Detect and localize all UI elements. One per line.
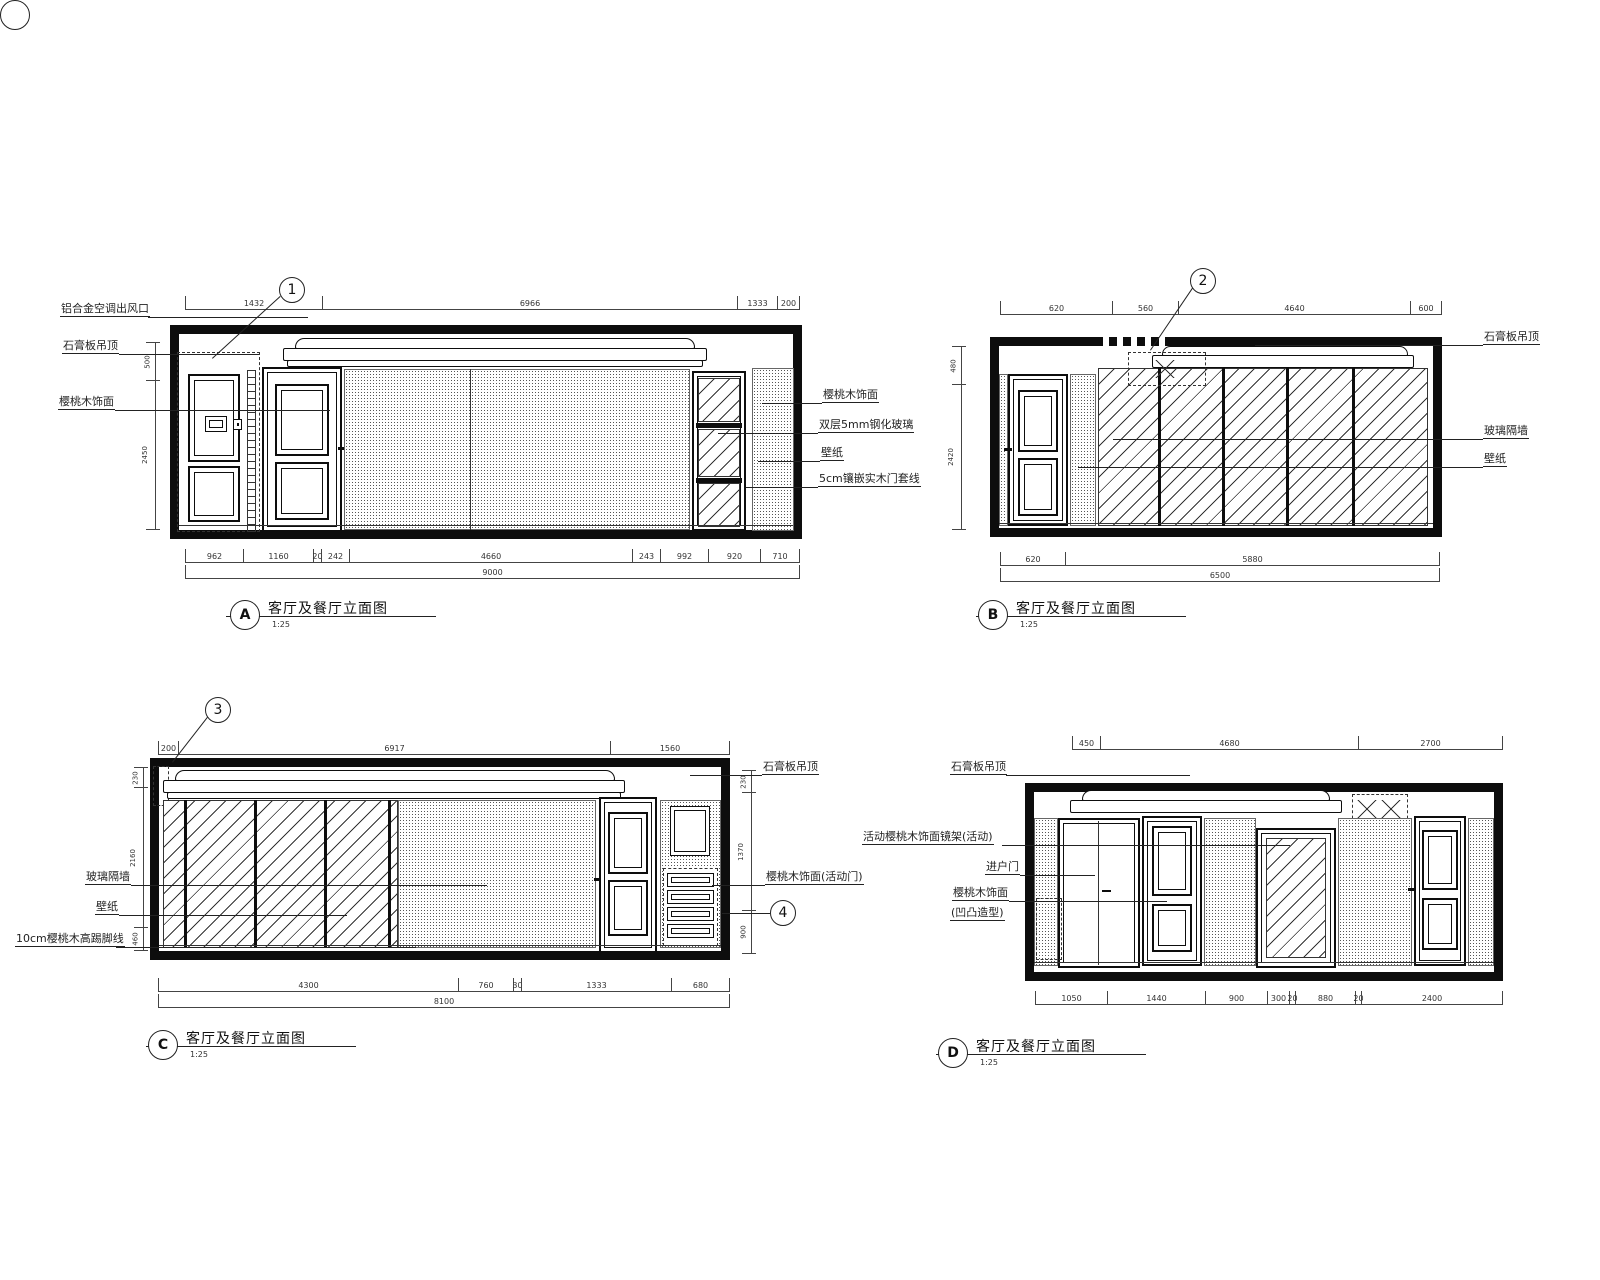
callout-bubble-4: 4 bbox=[770, 900, 796, 926]
panel-joint bbox=[470, 369, 471, 530]
material-label: 石膏板吊顶 bbox=[62, 339, 119, 354]
curtain-valance-band bbox=[1070, 800, 1342, 813]
floor-line bbox=[999, 523, 1433, 524]
door-panel bbox=[608, 812, 648, 874]
view-title: 客厅及餐厅立面图 bbox=[268, 598, 388, 618]
material-label: 铝合金空调出风口 bbox=[60, 302, 150, 317]
wallpaper-area bbox=[1468, 818, 1494, 966]
material-label: 5cm镶嵌实木门套线 bbox=[818, 472, 921, 487]
floor-line bbox=[179, 525, 793, 526]
wood-panel bbox=[188, 466, 240, 522]
curtain-valance-lip bbox=[287, 360, 703, 367]
leader-line bbox=[1002, 845, 1290, 846]
leader-line bbox=[119, 354, 259, 355]
view-title: 客厅及餐厅立面图 bbox=[1016, 598, 1136, 618]
callout-leader bbox=[172, 717, 208, 763]
material-label: 樱桃木饰面 bbox=[58, 395, 115, 410]
callout-bubble-1: 1 bbox=[279, 277, 305, 303]
glass-mullion bbox=[1158, 368, 1161, 526]
door-panel bbox=[1018, 390, 1058, 452]
material-label: 10cm樱桃木高踢脚线 bbox=[15, 932, 125, 947]
leader-line bbox=[115, 410, 330, 411]
glass-mullion bbox=[184, 800, 187, 948]
floor-line bbox=[159, 945, 721, 946]
material-label: 活动樱桃木饰面镜架(活动) bbox=[862, 830, 994, 845]
material-label: 壁纸 bbox=[820, 446, 844, 461]
glass-mullion bbox=[388, 800, 391, 948]
cabinet-shelf bbox=[696, 478, 742, 483]
cabinet-shelf bbox=[696, 423, 742, 428]
drawer bbox=[667, 924, 714, 938]
entry-door bbox=[1058, 818, 1140, 968]
material-label: 石膏板吊顶 bbox=[1483, 330, 1540, 345]
glass-mullion bbox=[1352, 368, 1355, 526]
mirror-glass bbox=[1266, 838, 1326, 958]
glass-mullion bbox=[254, 800, 257, 948]
view-scale: 1:25 bbox=[190, 1050, 208, 1059]
door-panel bbox=[275, 462, 329, 520]
dim-row-bottom-b: 620 5880 bbox=[1000, 552, 1440, 566]
material-label: 樱桃木饰面 bbox=[952, 886, 1009, 901]
title-circle-a: A bbox=[230, 600, 260, 630]
leader-line bbox=[148, 317, 308, 318]
cabinet-panel bbox=[1152, 904, 1192, 952]
leader-line bbox=[119, 915, 347, 916]
cabinet-panel bbox=[1152, 826, 1192, 896]
dim-row-top-c: 200 6917 1560 bbox=[158, 741, 730, 755]
material-label: 双层5mm钢化玻璃 bbox=[818, 418, 914, 433]
dim-row-total-b: 6500 bbox=[1000, 568, 1440, 582]
drawer bbox=[667, 907, 714, 921]
ac-vent-cross bbox=[1357, 800, 1377, 818]
drawer bbox=[667, 873, 714, 887]
door-handle bbox=[1408, 888, 1415, 891]
dim-col-left-a: 500 2450 bbox=[146, 342, 160, 530]
drawer bbox=[667, 890, 714, 904]
callout-leader bbox=[722, 913, 770, 914]
wallpaper-area bbox=[1070, 374, 1096, 526]
leader-line bbox=[746, 487, 818, 488]
material-label: 石膏板吊顶 bbox=[762, 760, 819, 775]
door-panel bbox=[608, 880, 648, 936]
dim-row-top-d: 450 4680 2700 bbox=[1072, 736, 1503, 750]
ceiling-dash-marks bbox=[1095, 337, 1173, 346]
leader-line bbox=[718, 433, 818, 434]
view-title: 客厅及餐厅立面图 bbox=[976, 1036, 1096, 1056]
glass-mullion bbox=[1222, 368, 1225, 526]
trim-strip bbox=[247, 370, 256, 532]
material-label: 进户门 bbox=[985, 860, 1020, 875]
callout-bubble-3: 3 bbox=[205, 697, 231, 723]
material-label: 樱桃木饰面 bbox=[822, 388, 879, 403]
dim-row-bottom-a: 962 1160 20 242 4660 243 992 920 710 bbox=[185, 549, 800, 563]
drawing-sheet: 1432 6966 1333 200 962 1160 20 242 4660 … bbox=[0, 0, 1600, 1280]
leader-line bbox=[712, 885, 765, 886]
dashed-detail bbox=[1036, 898, 1062, 960]
glass-partition bbox=[1098, 368, 1428, 526]
glass-mullion bbox=[1286, 368, 1289, 526]
leader-line bbox=[758, 461, 820, 462]
ac-vent-cross bbox=[1381, 800, 1401, 818]
title-circle-c: C bbox=[148, 1030, 178, 1060]
door-panel bbox=[1018, 458, 1058, 516]
door-handle bbox=[594, 878, 601, 881]
leader-line bbox=[1255, 345, 1483, 346]
material-label: 樱桃木饰面(活动门) bbox=[765, 870, 864, 885]
dim-col-left-b: 480 2420 bbox=[952, 346, 966, 530]
door-handle bbox=[1102, 890, 1111, 892]
entry-door-leaf-joint bbox=[1098, 821, 1099, 965]
wallpaper-area bbox=[1338, 818, 1412, 966]
title-circle-d: D bbox=[938, 1038, 968, 1068]
view-scale: 1:25 bbox=[1020, 620, 1038, 629]
glass-partition bbox=[163, 800, 398, 948]
material-label: 壁纸 bbox=[1483, 452, 1507, 467]
leader-line bbox=[1113, 439, 1483, 440]
dim-col-right-c: 230 1370 900 bbox=[742, 770, 756, 954]
material-label: 玻璃隔墙 bbox=[1483, 424, 1529, 439]
material-label: 石膏板吊顶 bbox=[950, 760, 1007, 775]
wallpaper-area bbox=[398, 800, 596, 948]
title-circle-b: B bbox=[978, 600, 1008, 630]
leader-line bbox=[131, 885, 487, 886]
leader-line bbox=[1020, 875, 1095, 876]
leader-line bbox=[116, 947, 416, 948]
ac-vent-cross bbox=[1150, 360, 1180, 378]
glass-mullion bbox=[324, 800, 327, 948]
cabinet-glass bbox=[698, 429, 740, 477]
cabinet-glass bbox=[698, 378, 740, 422]
wallpaper-area bbox=[1204, 818, 1256, 966]
door-panel bbox=[1422, 830, 1458, 890]
material-label: (凹凸造型) bbox=[950, 906, 1005, 921]
leader-line bbox=[1006, 775, 1190, 776]
wallpaper-area bbox=[752, 368, 794, 531]
view-title: 客厅及餐厅立面图 bbox=[186, 1028, 306, 1048]
callout-bubble-2: 2 bbox=[1190, 268, 1216, 294]
view-letter-a bbox=[0, 0, 30, 30]
dim-row-total-a: 9000 bbox=[185, 565, 800, 579]
mirror-frame bbox=[670, 806, 710, 856]
door-panel bbox=[275, 384, 329, 456]
dim-row-top-b: 620 560 4640 600 bbox=[1000, 301, 1442, 315]
dim-row-bottom-d: 1050 1440 900 300 20 880 20 2400 bbox=[1035, 991, 1503, 1005]
view-scale: 1:25 bbox=[980, 1058, 998, 1067]
leader-line bbox=[1009, 901, 1167, 902]
door-handle bbox=[1004, 448, 1012, 451]
switch-box bbox=[233, 419, 242, 430]
door-panel bbox=[1422, 898, 1458, 950]
dim-col-left-c: 230 2160 460 bbox=[134, 767, 148, 951]
dim-row-bottom-c: 4300 760 30 1333 680 bbox=[158, 978, 730, 992]
leader-line bbox=[690, 775, 762, 776]
leader-line bbox=[762, 403, 822, 404]
view-scale: 1:25 bbox=[272, 620, 290, 629]
thermostat bbox=[205, 416, 227, 432]
material-label: 玻璃隔墙 bbox=[85, 870, 131, 885]
cabinet-glass bbox=[698, 483, 740, 527]
floor-line bbox=[1034, 962, 1494, 963]
material-label: 壁纸 bbox=[95, 900, 119, 915]
leader-line bbox=[1078, 467, 1483, 468]
curtain-valance-lip bbox=[167, 792, 621, 799]
wallpaper-area bbox=[344, 369, 690, 530]
dim-row-total-c: 8100 bbox=[158, 994, 730, 1008]
